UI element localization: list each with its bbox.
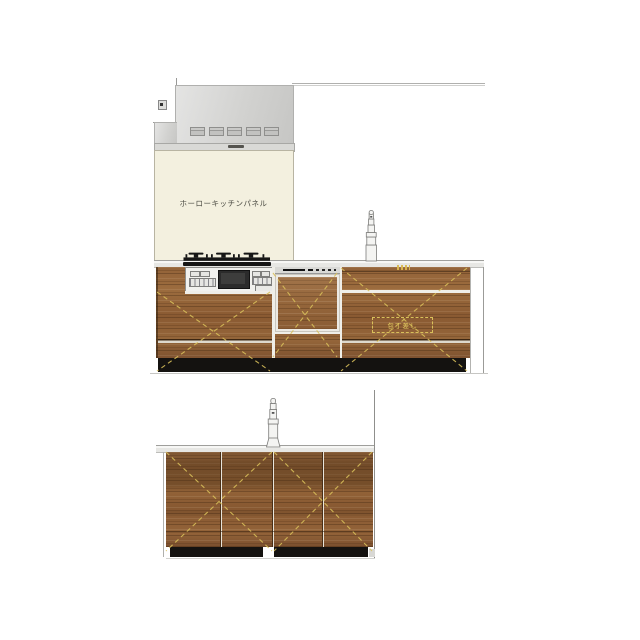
range-hood-body [175,85,294,145]
dishwasher-control-bar [283,269,305,272]
floor-line-top-elevation [150,373,488,374]
door-gap [322,452,324,547]
kitchen-elevation-drawing: ホーローキッチンパネル [0,0,640,640]
knife-pocket-label: 包丁差し [372,317,433,333]
grill-display-inner [221,273,245,284]
door-rail-line [166,531,373,533]
right-wall-line [374,390,375,559]
kitchen-panel: ホーローキッチンパネル [154,150,294,262]
grill-dial-panel-right [252,277,272,285]
range-hood-side-extension [154,122,177,145]
toe-kick-island-left [170,547,263,557]
dishwasher-control-dashes [316,269,336,271]
sink-unit-drawer-divider [342,339,470,343]
wall-switch-icon [158,100,167,110]
toe-kick-island-right [274,547,368,557]
seam-under-sink-rail [342,290,470,293]
seam-under-appliance [185,291,272,294]
sink-cabinet-top-rail-line [342,271,470,272]
hood-vent-slot [209,127,224,136]
faucet-top-icon [366,211,377,262]
base-cabinet-row [156,267,471,358]
dishwasher-door [278,277,337,329]
hood-vent-slot [264,127,279,136]
grill-dial-panel-left [189,278,216,287]
end-panel-line-outer [483,267,484,373]
grill-display-window [218,270,250,289]
grill-appliance-face [185,267,274,293]
grill-knob-left2 [200,271,210,277]
dishwasher-door-frame [275,274,340,332]
kitchen-panel-label: ホーローキッチンパネル [155,198,293,209]
left-unit-drawer-divider [158,339,274,343]
hood-vent-slot [190,127,205,136]
island-cabinet-face [166,452,373,547]
end-panel-line-inner [470,267,471,373]
seam-vertical-right-of-dishwasher [340,267,343,358]
hood-vent-slot [227,127,242,136]
floor-shadow-line [166,558,375,559]
wall-switch-dot [160,103,163,107]
left-end-line [163,452,164,557]
door-gap [272,452,274,547]
seam-under-dishwasher [275,332,340,335]
hood-vent-slot [246,127,261,136]
ceiling-line [292,83,485,86]
door-gap [220,452,222,547]
hood-model-text-mark [228,145,244,148]
faucet-bottom-icon [267,399,281,448]
dishwasher-control-button [308,269,313,272]
end-panel-foot [369,549,375,557]
hinge-marker [397,265,410,271]
cooktop-edge-strip [183,262,271,267]
toe-kick-top-elevation [158,358,466,372]
grill-knob-left [190,271,200,277]
